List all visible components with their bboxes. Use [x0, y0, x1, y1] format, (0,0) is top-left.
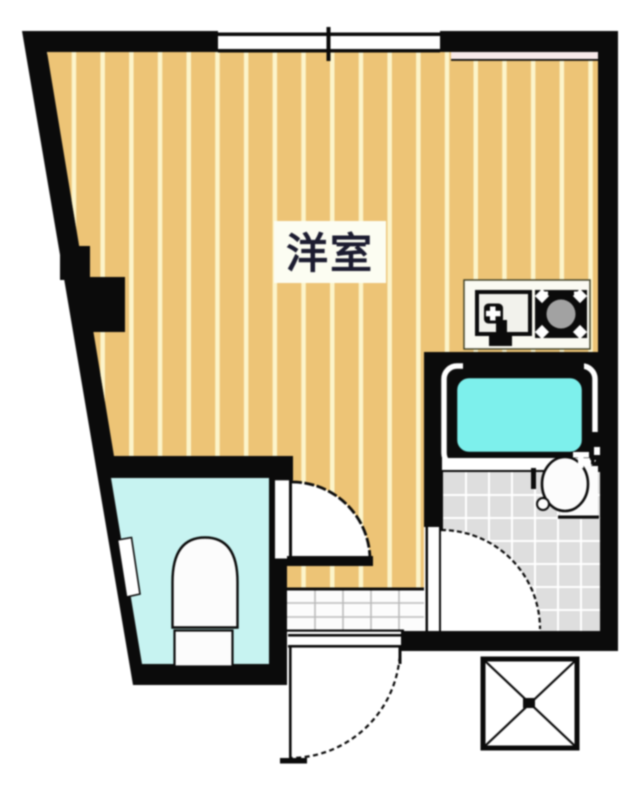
svg-text:洋室: 洋室: [286, 230, 374, 277]
